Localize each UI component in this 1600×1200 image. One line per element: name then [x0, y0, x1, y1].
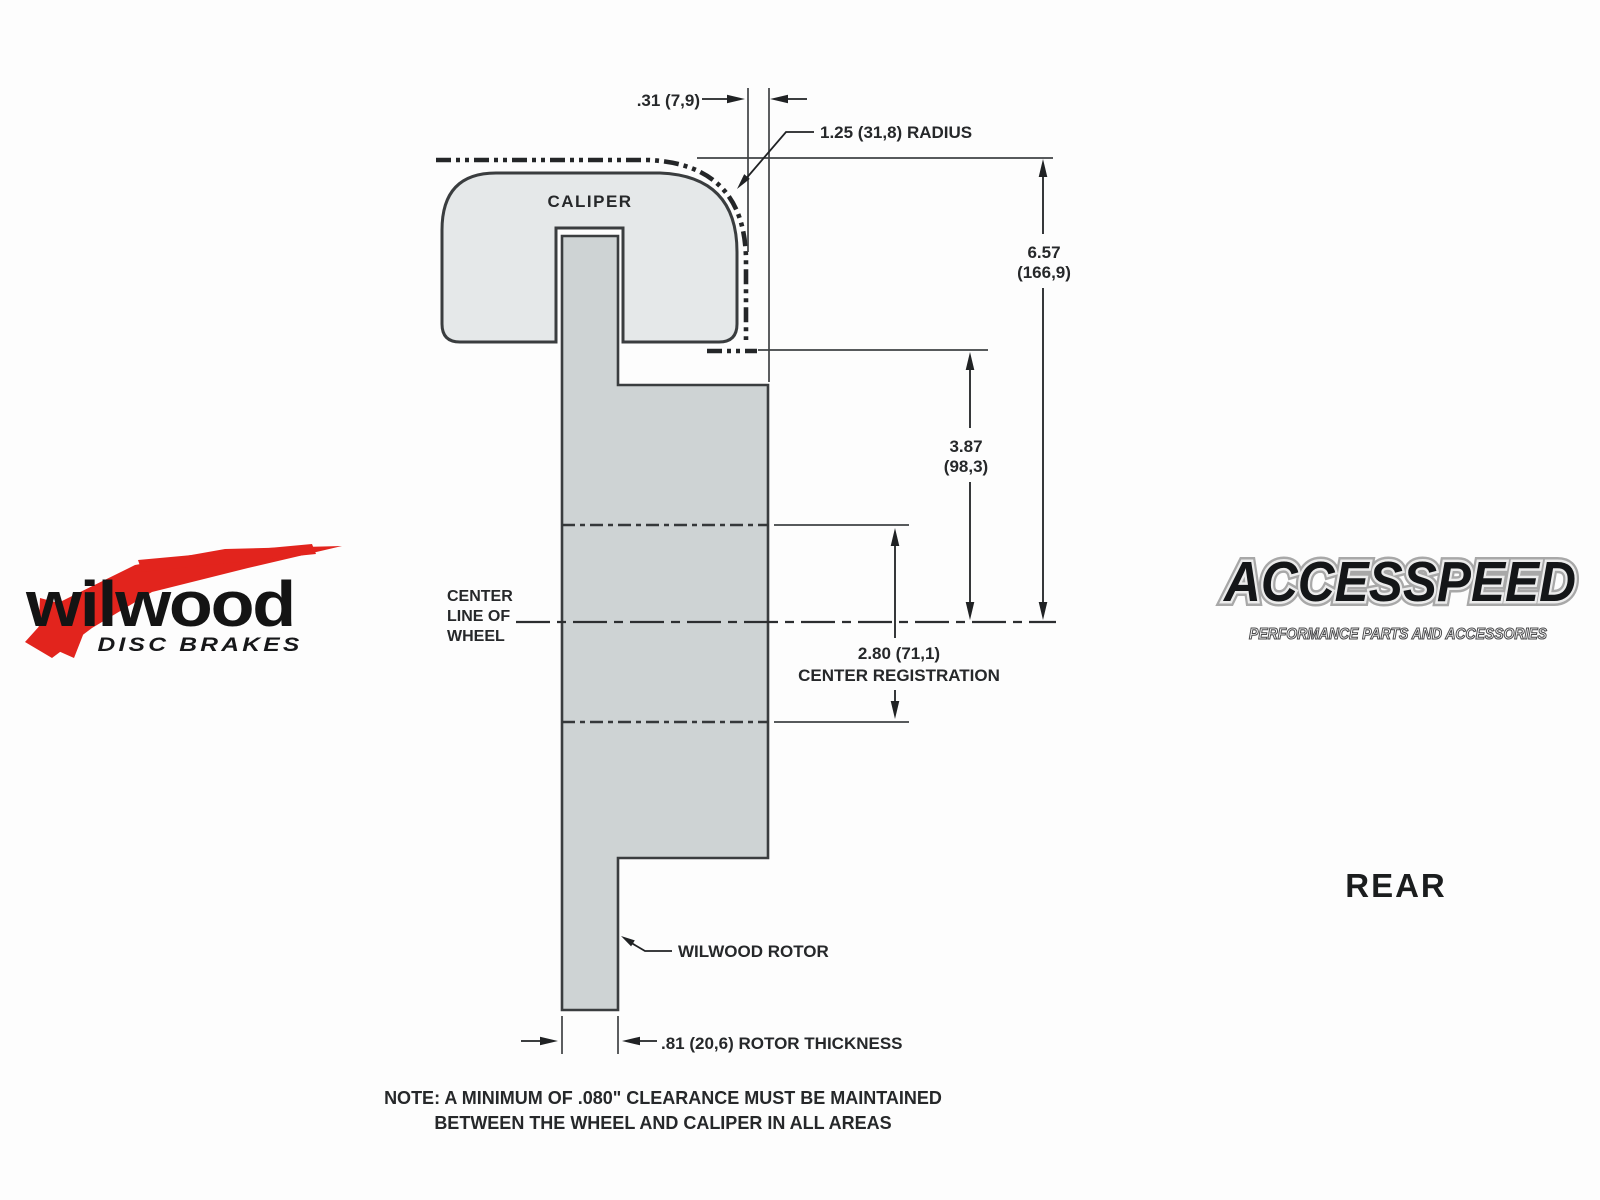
dim-mid-mm: (98,3) — [944, 457, 988, 476]
technical-drawing-page: .31 (7,9) 1.25 (31,8) RADIUS 6.57 (166,9… — [0, 0, 1600, 1200]
dim-overall-height: 6.57 (166,9) — [1017, 159, 1071, 620]
dim-height-mm: (166,9) — [1017, 263, 1071, 282]
dim-registration-label: CENTER REGISTRATION — [798, 666, 1000, 685]
centerline-label: CENTER LINE OF WHEEL — [447, 588, 513, 645]
accesspeed-wordmark-inner: ACCESSPEED — [1222, 550, 1576, 614]
wilwood-tagline: DISC BRAKES — [98, 635, 303, 656]
dim-gap-text: .31 (7,9) — [637, 91, 700, 110]
accesspeed-tagline: PERFORMANCE PARTS AND ACCESSORIES — [1249, 626, 1547, 643]
caliper-label: CALIPER — [547, 192, 632, 211]
clearance-note: NOTE: A MINIMUM OF .080" CLEARANCE MUST … — [384, 1088, 942, 1133]
dim-mid-in: 3.87 — [949, 437, 982, 456]
brake-diagram: .31 (7,9) 1.25 (31,8) RADIUS 6.57 (166,9… — [0, 0, 1600, 1200]
dim-radius-text: 1.25 (31,8) RADIUS — [820, 123, 972, 142]
view-label: REAR — [1345, 867, 1447, 904]
svg-text:CENTER: CENTER — [447, 588, 513, 605]
rotor-callout: WILWOOD ROTOR — [621, 936, 829, 961]
svg-text:WHEEL: WHEEL — [447, 628, 505, 645]
dim-rotor-thickness: .81 (20,6) ROTOR THICKNESS — [521, 1034, 903, 1053]
accesspeed-logo: ACCESSPEED ACCESSPEED PERFORMANCE PARTS … — [1222, 550, 1576, 643]
rotor-label-text: WILWOOD ROTOR — [678, 942, 829, 961]
wilwood-logo: wilwood DISC BRAKES — [25, 544, 342, 658]
dim-thickness-text: .81 (20,6) ROTOR THICKNESS — [661, 1034, 903, 1053]
dim-height-in: 6.57 — [1027, 243, 1060, 262]
dim-lip-to-center: 3.87 (98,3) — [944, 352, 988, 620]
dim-wheel-radius: 1.25 (31,8) RADIUS — [737, 123, 972, 189]
note-line-1: NOTE: A MINIMUM OF .080" CLEARANCE MUST … — [384, 1088, 942, 1108]
dim-registration-value: 2.80 (71,1) — [858, 644, 940, 663]
note-line-2: BETWEEN THE WHEEL AND CALIPER IN ALL ARE… — [434, 1113, 891, 1133]
dim-wheel-to-hat-gap: .31 (7,9) — [637, 91, 807, 110]
wilwood-wordmark: wilwood — [25, 568, 294, 640]
svg-text:LINE OF: LINE OF — [447, 608, 510, 625]
